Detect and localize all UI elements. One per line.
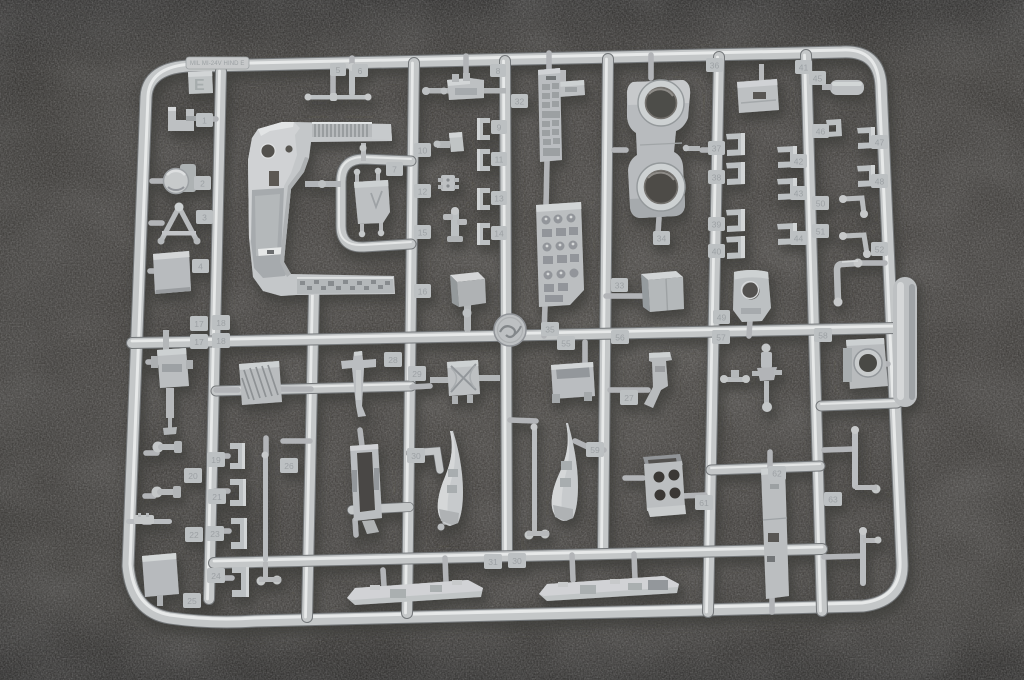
svg-text:37: 37 — [712, 144, 722, 154]
svg-text:57: 57 — [716, 333, 726, 343]
svg-text:18: 18 — [216, 318, 226, 328]
svg-text:25: 25 — [187, 596, 197, 606]
svg-text:23: 23 — [210, 529, 220, 539]
svg-text:52: 52 — [875, 245, 885, 255]
svg-text:63: 63 — [828, 495, 838, 505]
svg-text:14: 14 — [494, 229, 504, 239]
svg-text:58: 58 — [818, 331, 828, 341]
svg-text:10: 10 — [418, 146, 428, 156]
svg-text:7: 7 — [392, 165, 397, 175]
svg-text:26: 26 — [284, 461, 294, 471]
svg-text:4: 4 — [198, 262, 203, 272]
svg-text:31: 31 — [488, 557, 498, 567]
svg-text:55: 55 — [561, 339, 571, 349]
svg-text:34: 34 — [657, 234, 667, 244]
svg-text:20: 20 — [188, 471, 198, 481]
svg-text:MIL MI-24V HIND E: MIL MI-24V HIND E — [190, 61, 245, 67]
svg-text:8: 8 — [496, 66, 501, 76]
svg-text:12: 12 — [418, 187, 428, 197]
svg-text:30: 30 — [512, 556, 522, 566]
svg-text:24: 24 — [211, 571, 221, 581]
svg-text:50: 50 — [816, 199, 826, 209]
svg-text:42: 42 — [794, 157, 804, 167]
svg-text:29: 29 — [412, 369, 422, 379]
svg-text:46: 46 — [816, 127, 826, 137]
svg-text:47: 47 — [875, 138, 885, 148]
svg-text:61: 61 — [699, 498, 709, 508]
svg-text:59: 59 — [590, 445, 600, 455]
svg-text:2: 2 — [200, 179, 205, 189]
svg-text:49: 49 — [717, 313, 727, 323]
svg-text:27: 27 — [624, 393, 634, 403]
svg-text:28: 28 — [388, 355, 398, 365]
svg-text:39: 39 — [712, 220, 722, 230]
svg-text:30: 30 — [411, 451, 421, 461]
svg-text:51: 51 — [816, 227, 826, 237]
svg-text:62: 62 — [772, 469, 782, 479]
svg-text:17: 17 — [194, 319, 204, 329]
svg-text:45: 45 — [813, 74, 823, 84]
svg-text:35: 35 — [545, 325, 555, 335]
svg-text:21: 21 — [212, 492, 222, 502]
svg-text:48: 48 — [875, 177, 885, 187]
svg-text:16: 16 — [418, 287, 428, 297]
svg-text:15: 15 — [418, 228, 428, 238]
svg-text:56: 56 — [615, 333, 625, 343]
svg-text:19: 19 — [211, 455, 221, 465]
svg-text:43: 43 — [794, 189, 804, 199]
svg-text:13: 13 — [494, 194, 504, 204]
svg-text:38: 38 — [712, 173, 722, 183]
svg-text:40: 40 — [712, 247, 722, 257]
svg-text:22: 22 — [189, 530, 199, 540]
svg-text:1: 1 — [202, 116, 207, 126]
svg-text:11: 11 — [495, 155, 504, 165]
svg-text:18: 18 — [216, 336, 226, 346]
svg-text:6: 6 — [358, 66, 363, 76]
svg-text:E: E — [194, 77, 205, 94]
svg-text:32: 32 — [515, 97, 525, 107]
svg-text:5: 5 — [336, 65, 341, 75]
svg-text:44: 44 — [794, 234, 804, 244]
svg-text:33: 33 — [615, 281, 625, 291]
svg-text:9: 9 — [497, 123, 502, 133]
svg-text:41: 41 — [799, 63, 809, 73]
svg-text:17: 17 — [194, 337, 204, 347]
svg-text:36: 36 — [710, 61, 720, 71]
svg-text:3: 3 — [202, 213, 207, 223]
